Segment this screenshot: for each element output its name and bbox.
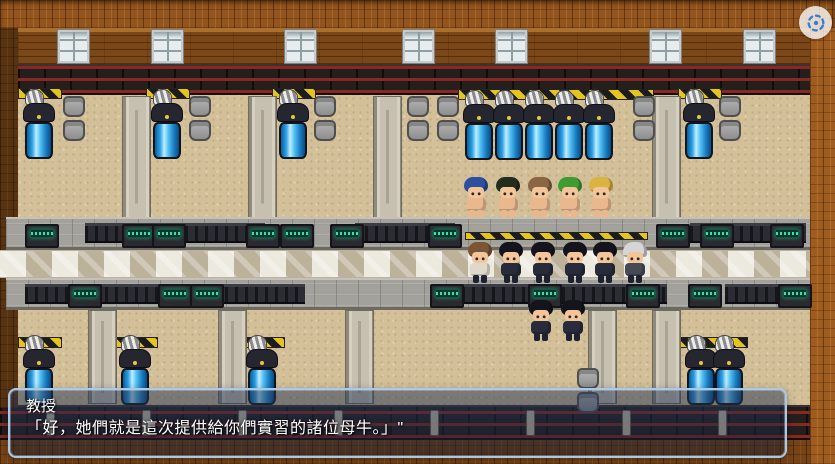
tank-cap [493,104,525,123]
control-console [430,284,464,308]
face [468,187,484,198]
pillar [248,96,277,218]
control-console [626,284,660,308]
tank-cap [246,349,278,368]
torso [563,321,583,334]
seat [63,120,85,141]
dialog-box[interactable]: 教授 「好，她們就是這次提供給你們實習的諸位母牛。」" [8,388,787,458]
console-screen [127,229,151,238]
window [58,30,89,63]
seat [437,120,459,141]
tank-cap [463,104,495,123]
tank-body [685,122,713,159]
leg [568,275,574,283]
face [597,252,613,263]
seat [577,368,599,389]
girl-brown-hair[interactable] [527,177,553,215]
seat [407,96,429,117]
face [472,252,488,263]
console-screen [433,229,457,238]
face [593,187,609,198]
npc-student[interactable] [592,242,618,284]
tank-cap [683,103,715,122]
cryo-tank [276,96,310,160]
tank-cap [583,104,615,123]
leg [602,210,608,218]
seat [437,96,459,117]
pillar [652,96,681,218]
control-console [700,224,734,248]
tank-body [279,122,307,159]
leg [606,275,612,283]
cryo-tank [492,97,526,161]
seat-pair [718,96,742,142]
leg [541,210,547,218]
leg [544,275,550,283]
screen-capture-icon [805,12,827,34]
torso [560,198,580,211]
console-screen [631,289,655,298]
tank-cap [119,349,151,368]
face [503,252,519,263]
console-screen [73,289,97,298]
torso [470,263,490,276]
leg [509,210,515,218]
torso [565,263,585,276]
right-wood-door [810,28,835,464]
leg [477,210,483,218]
face [532,187,548,198]
torso [595,263,615,276]
leg [566,333,572,341]
screen-capture-button[interactable] [799,6,832,39]
seat [719,96,741,117]
seat [189,120,211,141]
console-screen [705,229,729,238]
npc-student[interactable] [498,242,524,284]
console-screen [775,229,799,238]
seat [633,96,655,117]
seat-pair [632,96,656,142]
tank-cap [151,103,183,122]
torso [531,321,551,334]
npc-professor[interactable] [622,242,648,284]
girl-blonde-hair[interactable] [588,177,614,215]
leg [636,275,642,283]
tank-body [495,123,523,160]
leg [469,210,475,218]
npc-student[interactable] [560,300,586,342]
tank-cap [23,103,55,122]
window [285,30,316,63]
console-screen [30,229,54,238]
torso [591,198,611,211]
console-screen [661,229,685,238]
girl-green-hair[interactable] [557,177,583,215]
face [627,252,643,263]
tank-body [25,122,53,159]
npc-student[interactable] [562,242,588,284]
npc-casual-student[interactable] [467,242,493,284]
tank-cap [277,103,309,122]
control-console [770,224,804,248]
tank-cap [23,349,55,368]
window [403,30,434,63]
seat [314,120,336,141]
window [152,30,183,63]
leg [501,210,507,218]
console-screen [783,289,807,298]
control-console [688,284,722,308]
cryo-tank [462,97,496,161]
console-screen [435,289,459,298]
game-viewport: 教授 「好，她們就是這次提供給你們實習的諸位母牛。」" [0,0,835,464]
seat [633,120,655,141]
leg [598,275,604,283]
control-console [656,224,690,248]
face [567,252,583,263]
leg [504,275,510,283]
seat [314,96,336,117]
tank-cap [553,104,585,123]
console-screen [285,229,309,238]
tank-body [153,122,181,159]
face [500,187,516,198]
control-console [246,224,280,248]
console-screen [693,289,717,298]
face [535,252,551,263]
dialog-text: 「好，她們就是這次提供給你們實習的諸位母牛。」" [26,417,769,440]
seat-pair [406,96,430,142]
control-console [152,224,186,248]
leg [563,210,569,218]
leg [576,275,582,283]
torso [530,198,550,211]
tank-cap [523,104,555,123]
leg [481,275,487,283]
girl-black-hair[interactable] [495,177,521,215]
leg [533,210,539,218]
cryo-tank [150,96,184,160]
seat [407,120,429,141]
control-console [190,284,224,308]
top-wood-planks [0,0,835,28]
torso [625,263,645,276]
console-screen [533,289,557,298]
torso [466,198,486,211]
tank-cap [713,349,745,368]
window [650,30,681,63]
leg [542,333,548,341]
tank-body [525,123,553,160]
control-console [68,284,102,308]
seat [63,96,85,117]
dialog-speaker: 教授 [26,397,769,417]
console-screen [157,229,181,238]
console-screen [335,229,359,238]
leg [536,275,542,283]
control-console [428,224,462,248]
seat [719,120,741,141]
pillar [373,96,402,218]
cryo-tank [522,97,556,161]
control-console [280,224,314,248]
window [496,30,527,63]
seat-pair [313,96,337,142]
seat [189,96,211,117]
leg [628,275,634,283]
leg [594,210,600,218]
seat-pair [62,96,86,142]
control-console [778,284,812,308]
torso [501,263,521,276]
npc-student[interactable] [530,242,556,284]
console-screen [251,229,275,238]
seat-pair [188,96,212,142]
tank-body [465,123,493,160]
leg [512,275,518,283]
face [562,187,578,198]
face [533,310,549,321]
face [565,310,581,321]
checkered-walkway [0,250,810,278]
window [744,30,775,63]
leg [571,210,577,218]
tank-body [585,123,613,160]
hazard-stripe [465,232,648,240]
console-screen [163,289,187,298]
girl-blue-hair[interactable] [463,177,489,215]
seat-pair [436,96,460,142]
cryo-tank [552,97,586,161]
console-screen [195,289,219,298]
control-console [25,224,59,248]
pillar [122,96,151,218]
leg [574,333,580,341]
tank-body [555,123,583,160]
leg [534,333,540,341]
control-console [330,224,364,248]
cryo-tank [22,96,56,160]
torso [533,263,553,276]
cryo-tank [582,97,616,161]
torso [498,198,518,211]
npc-student[interactable] [528,300,554,342]
cryo-tank [682,96,716,160]
control-console [158,284,192,308]
control-console [122,224,156,248]
leg [473,275,479,283]
